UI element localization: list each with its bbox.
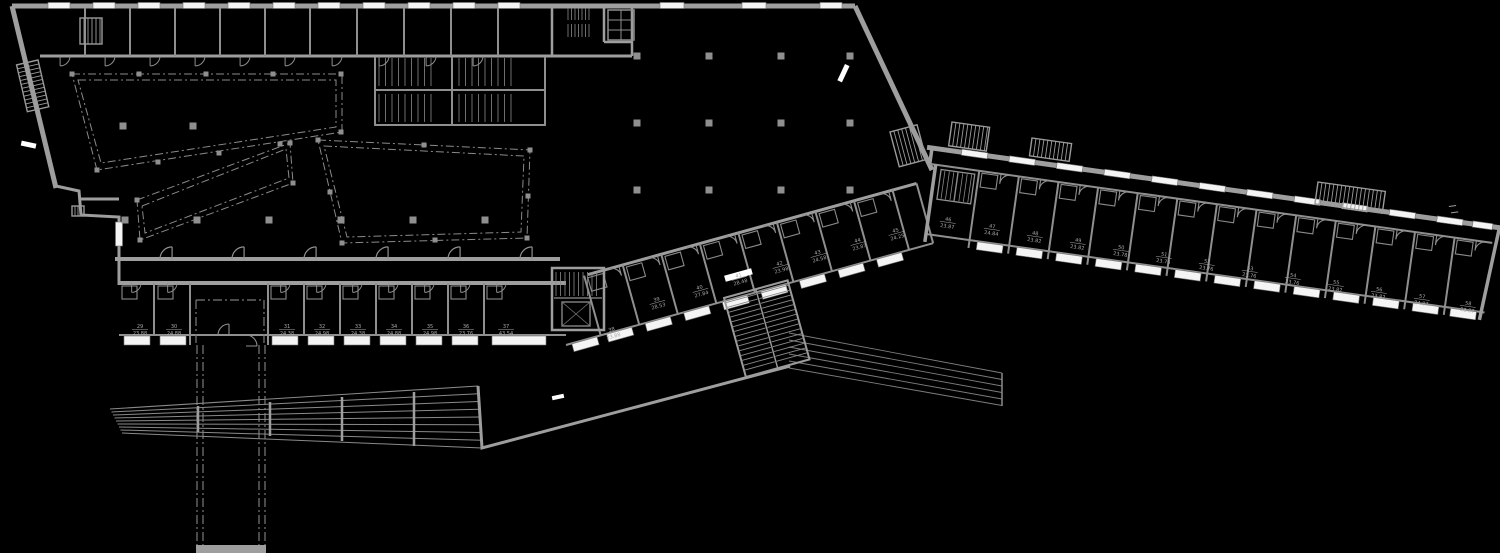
bathroom-pods (122, 286, 502, 299)
svg-text:24.98: 24.98 (423, 331, 437, 337)
left-building-block (12, 3, 932, 286)
room-label: 5323.76 (1241, 265, 1259, 280)
external-stairs (17, 18, 1386, 216)
svg-text:23.88: 23.88 (133, 331, 147, 337)
room-label: 5724.87 (1413, 293, 1431, 308)
room-label: 5523.82 (1327, 279, 1345, 294)
wing-bottom-windows (976, 242, 1476, 320)
external-stair-comb (80, 18, 102, 44)
bridge-footing (196, 545, 266, 553)
svg-text:23.82: 23.82 (1070, 244, 1085, 252)
diagonal-wall-opening (837, 64, 849, 82)
room-label: 5223.76 (1198, 258, 1216, 273)
svg-text:31: 31 (284, 324, 290, 330)
svg-text:23.78: 23.78 (1113, 251, 1128, 259)
external-stair-comb (1315, 182, 1385, 213)
top-room-row (40, 8, 632, 56)
svg-text:36: 36 (463, 324, 469, 330)
svg-text:24.88: 24.88 (387, 331, 401, 337)
svg-text:24.84: 24.84 (984, 230, 999, 238)
path-marker (552, 394, 565, 400)
external-stair-comb (949, 122, 990, 151)
exterior-features (17, 18, 1386, 448)
svg-text:23.87: 23.87 (940, 223, 955, 231)
room-label: 3524.98 (422, 324, 438, 337)
site-boundary-path (478, 366, 790, 448)
middle-band-windows (572, 252, 904, 351)
right-wing (914, 131, 1500, 321)
svg-text:23.82: 23.82 (1328, 286, 1343, 294)
svg-text:33: 33 (355, 324, 361, 330)
room-label: 5023.78 (1112, 244, 1130, 259)
room-label: 2923.88 (132, 324, 148, 337)
svg-text:24.38: 24.38 (280, 331, 294, 337)
room-label: 3124.38 (279, 324, 295, 337)
room-label: 5623.82 (1370, 286, 1388, 301)
svg-text:23.76: 23.76 (459, 331, 473, 337)
mezzanine-outlines (72, 74, 530, 243)
toilet-stalls (379, 8, 972, 296)
room-label: 3324.38 (350, 324, 366, 337)
svg-text:23.76: 23.76 (1156, 258, 1171, 266)
room-label: 4724.84 (983, 223, 1001, 238)
room-label: 3623.76 (458, 324, 474, 337)
left-wall-window (116, 222, 123, 246)
room-label: 5423.76 (1284, 272, 1302, 287)
svg-text:35: 35 (427, 324, 433, 330)
entry-marker (21, 141, 37, 149)
room-label: 4027.84 (691, 283, 710, 300)
svg-text:32: 32 (319, 324, 325, 330)
external-stair-comb (1029, 138, 1071, 161)
room-label: 4823.82 (1026, 230, 1044, 245)
room-label: 4923.82 (1069, 237, 1087, 252)
left-edge-jogs (56, 186, 119, 285)
lobby-bridge (196, 300, 266, 553)
stair-core (552, 6, 634, 56)
amphitheater-steps (110, 386, 482, 448)
svg-text:30: 30 (171, 324, 177, 330)
toilet-block (375, 57, 545, 125)
door-swings (60, 56, 1486, 346)
floor-plan-svg: 2923.883024.883124.383224.983324.383424.… (0, 0, 1500, 553)
room-label: 3024.88 (166, 324, 182, 337)
room-label: 5828.87 (1459, 300, 1477, 315)
door-swing (218, 324, 229, 335)
external-stair-comb (17, 60, 49, 112)
svg-text:29: 29 (137, 324, 143, 330)
room-label: 3424.88 (386, 324, 402, 337)
svg-text:24.38: 24.38 (351, 331, 365, 337)
floor-plan-canvas: 2923.883024.883124.383224.983324.383424.… (0, 0, 1500, 553)
svg-text:34: 34 (391, 324, 397, 330)
room-label: 4623.87 (939, 216, 957, 231)
svg-text:24.88: 24.88 (167, 331, 181, 337)
svg-text:43.54: 43.54 (499, 331, 513, 337)
bottom-row-windows (124, 336, 546, 345)
section-ticks (1448, 205, 1459, 214)
svg-text:24.98: 24.98 (315, 331, 329, 337)
room-label: 3224.98 (314, 324, 330, 337)
svg-text:37: 37 (503, 324, 509, 330)
room-label: 3743.54 (498, 324, 514, 337)
room-label: 3928.53 (648, 295, 667, 312)
svg-text:23.82: 23.82 (1027, 237, 1042, 245)
pedestrian-ramp (789, 333, 1002, 406)
door-swing (246, 335, 257, 346)
